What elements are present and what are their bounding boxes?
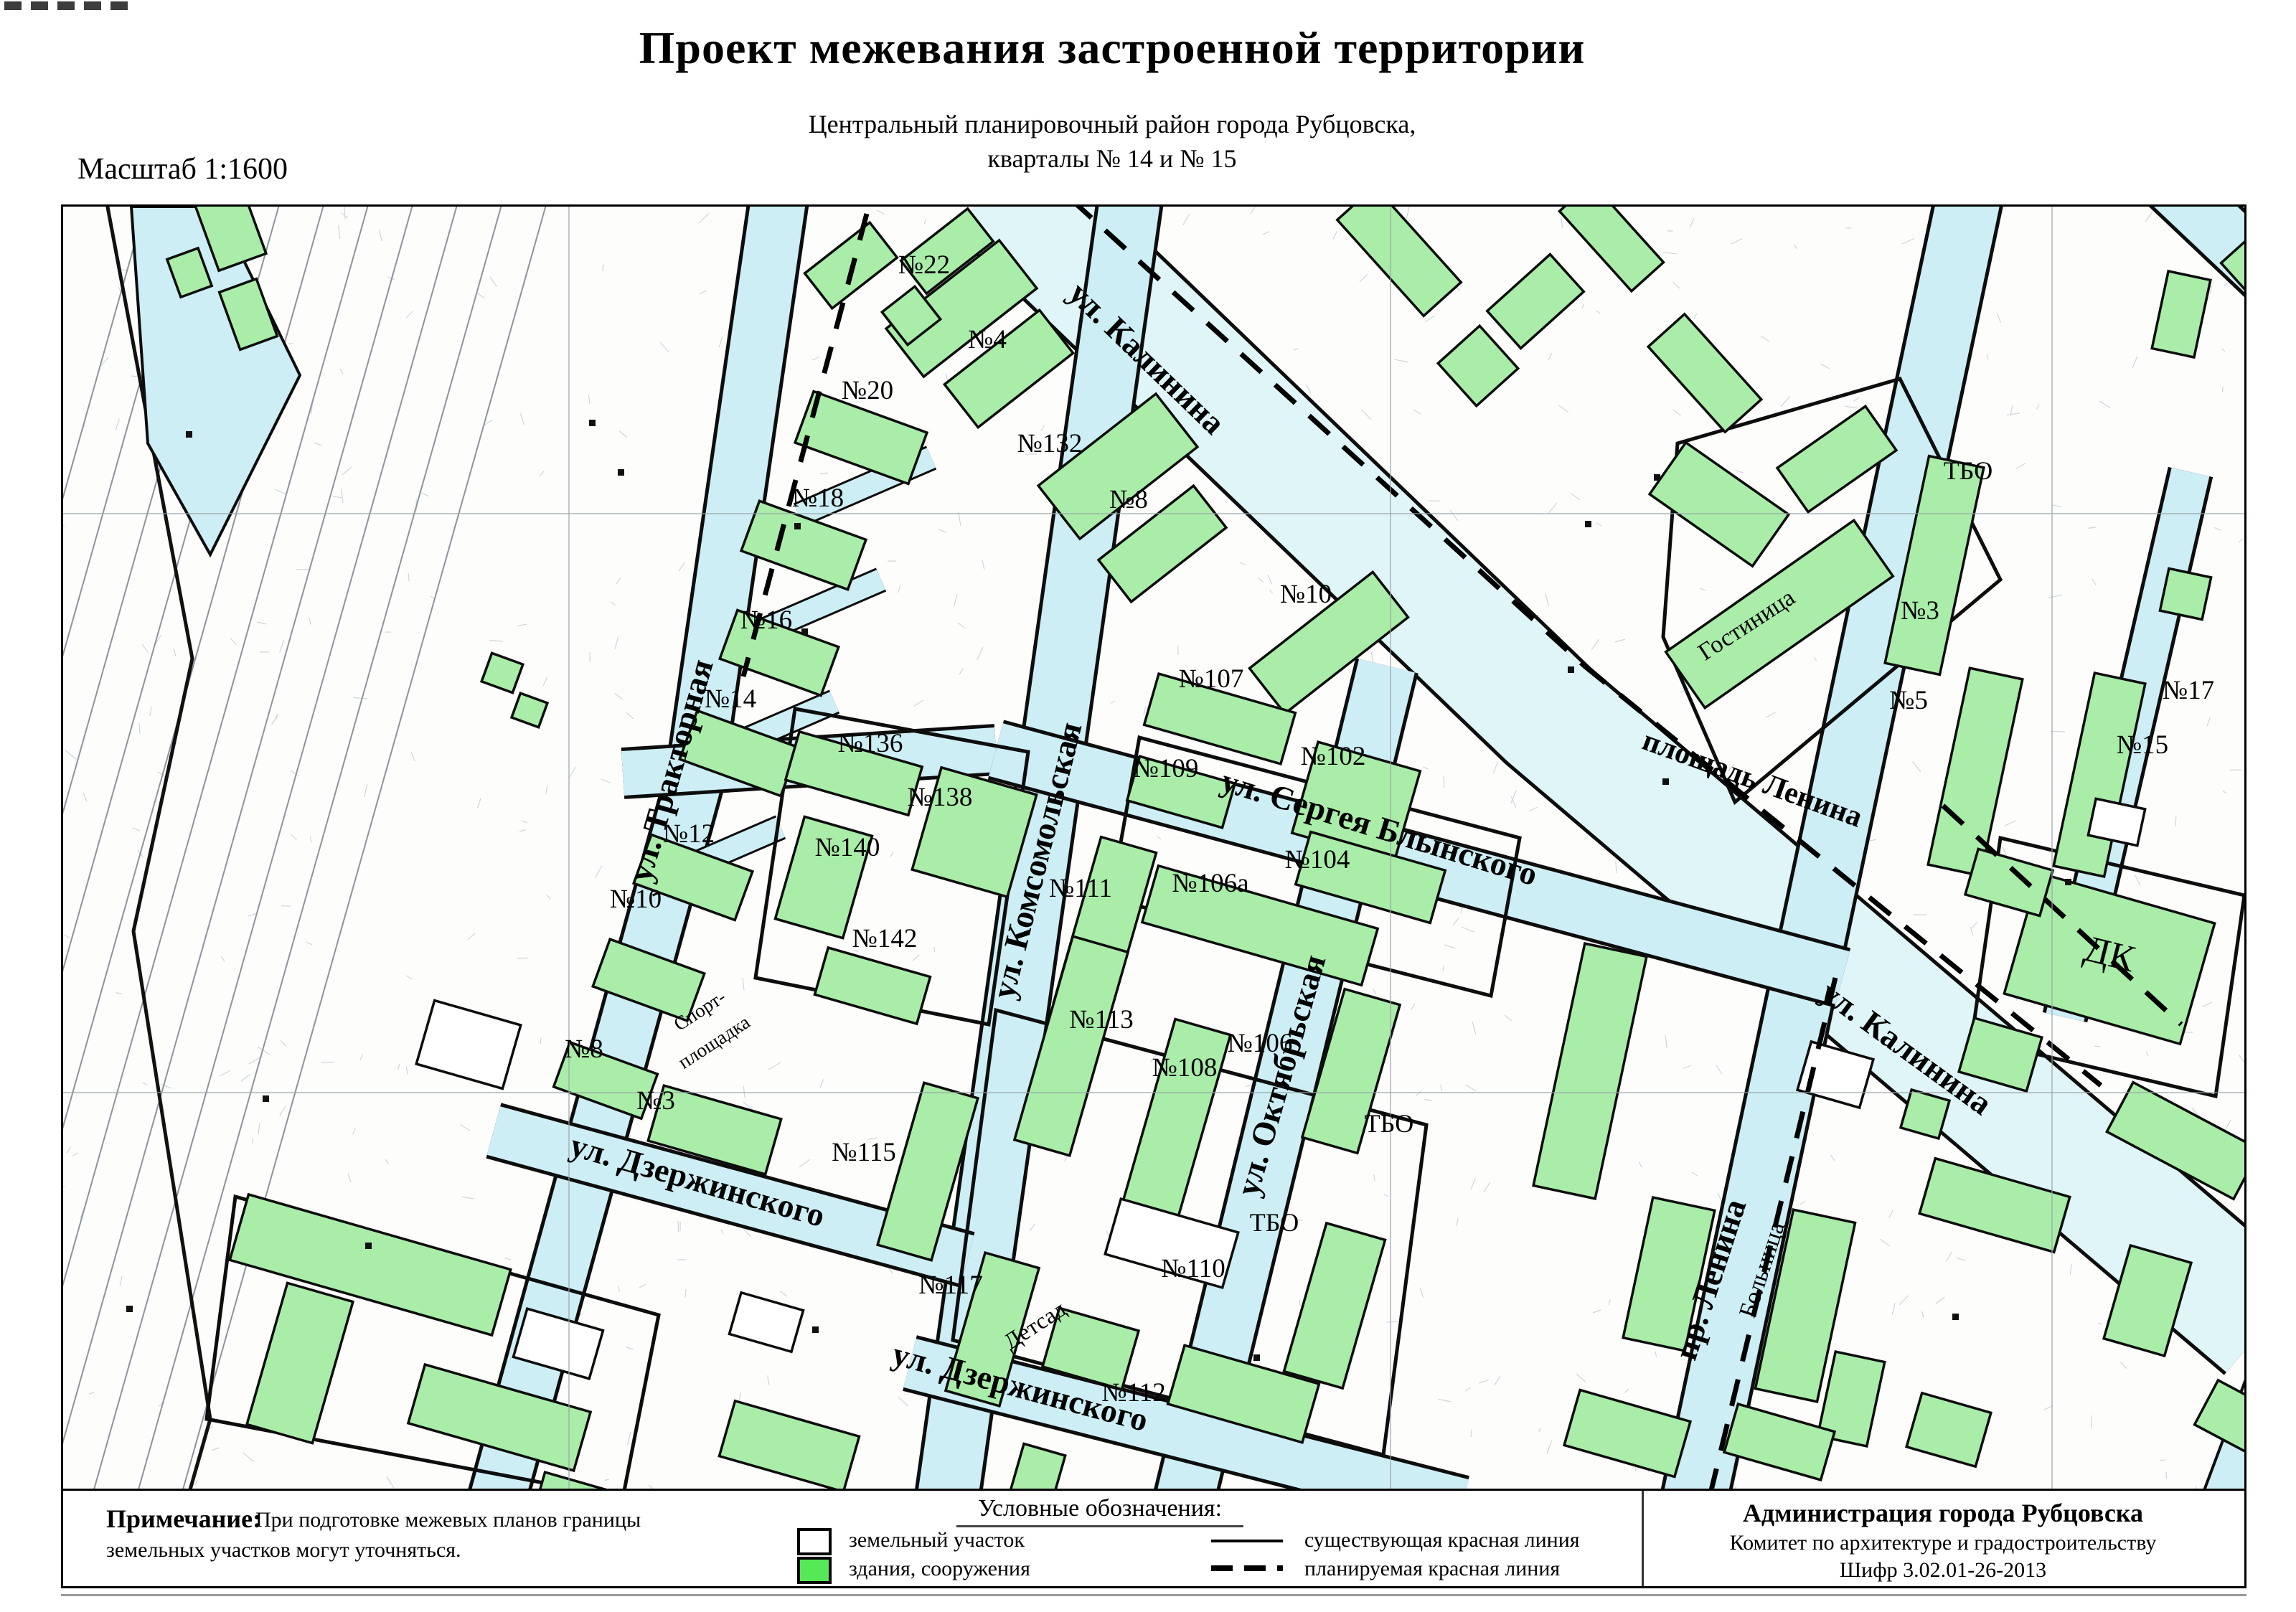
place-label: ТБО: [1365, 1109, 1413, 1138]
parcel-label: №107: [1179, 664, 1244, 694]
parcel-label: №10: [610, 885, 662, 914]
parcel-label: №12: [663, 819, 715, 849]
scale-label: Масштаб 1:1600: [77, 152, 288, 187]
parcel-label: №16: [740, 605, 792, 635]
parcel-label: №109: [1134, 754, 1199, 783]
parcel-label: №117: [918, 1271, 982, 1300]
stamp-organization: Администрация города Рубцовска: [1649, 1498, 2237, 1528]
place-label: ТБО: [1944, 456, 1992, 485]
parcel-label: №102: [1301, 742, 1366, 771]
parcel-label: №106: [1228, 1029, 1293, 1058]
parcel-label: №108: [1152, 1053, 1218, 1083]
parcel-label: №10: [1280, 580, 1332, 609]
parcel-label: №3: [636, 1086, 675, 1116]
parcel-label: №113: [1069, 1005, 1133, 1034]
parcel-label: №5: [1889, 686, 1928, 715]
parcel-label: №106а: [1172, 869, 1248, 898]
existing-red-line-sample: [1211, 1540, 1283, 1542]
parcel-label: №132: [1017, 429, 1083, 458]
parcel-label: №142: [852, 924, 918, 953]
page-subtitle-2: кварталы № 14 и № 15: [0, 143, 2224, 174]
legend-label-parcel: земельный участок: [849, 1528, 1025, 1552]
scan-artifact: [4, 1, 128, 10]
parcel-label: №136: [838, 729, 903, 758]
legend-title: Условные обозначения:: [956, 1495, 1243, 1527]
legend-label-existing-line: существующая красная линия: [1304, 1528, 1580, 1552]
parcel-label: №22: [898, 250, 950, 280]
parcel-label: №140: [815, 833, 880, 862]
parcel-label: №20: [842, 376, 893, 405]
planned-red-line-sample: [1211, 1565, 1283, 1571]
parcel-label: №15: [2117, 730, 2168, 760]
stamp-code: Шифр 3.02.01-26-2013: [1649, 1558, 2237, 1583]
parcel-label: №110: [1161, 1254, 1225, 1283]
parcel-label: №115: [832, 1138, 895, 1167]
parcel-swatch: [797, 1528, 832, 1555]
legend-label-planned-line: планируемая красная линия: [1304, 1557, 1560, 1581]
building-swatch: [797, 1557, 832, 1584]
parcel-label: №14: [705, 684, 756, 714]
map-frame: ул. Калининаул. Калининаул. Тракторнаяул…: [61, 204, 2246, 1493]
parcel-label: №138: [908, 783, 973, 812]
title-block: Примечание: При подготовке межевых плано…: [61, 1489, 2246, 1588]
parcel-label: №111: [1049, 874, 1112, 903]
page-subtitle-1: Центральный планировочный район города Р…: [0, 109, 2224, 139]
parcel-label: №18: [792, 484, 844, 513]
note-text-2: земельных участков могут уточняться.: [106, 1538, 461, 1562]
page-title: Проект межевания застроенной территории: [0, 22, 2224, 75]
place-label: ТБО: [1250, 1208, 1299, 1237]
parcel-label: №4: [968, 325, 1007, 354]
map-canvas: ул. Калининаул. Калининаул. Тракторнаяул…: [63, 207, 2244, 1493]
legend-label-building: здания, сооружения: [849, 1557, 1030, 1581]
stamp-committee: Комитет по архитектуре и градостроительс…: [1649, 1531, 2237, 1555]
note-label: Примечание:: [106, 1504, 261, 1534]
stamp-divider: [1642, 1491, 1644, 1586]
parcel-label: №104: [1285, 845, 1350, 875]
parcel-label: №17: [2163, 676, 2214, 705]
note-text-1: При подготовке межевых планов границы: [255, 1508, 641, 1532]
sheet-bottom-rule: [61, 1594, 2246, 1596]
parcel-label: №112: [1101, 1378, 1165, 1408]
parcel-label: №3: [1901, 596, 1939, 626]
parcel-label: №8: [565, 1034, 603, 1064]
sheet: Проект межевания застроенной территории …: [0, 0, 2296, 1612]
building: [2160, 568, 2211, 619]
parcel-label: №8: [1109, 485, 1148, 514]
